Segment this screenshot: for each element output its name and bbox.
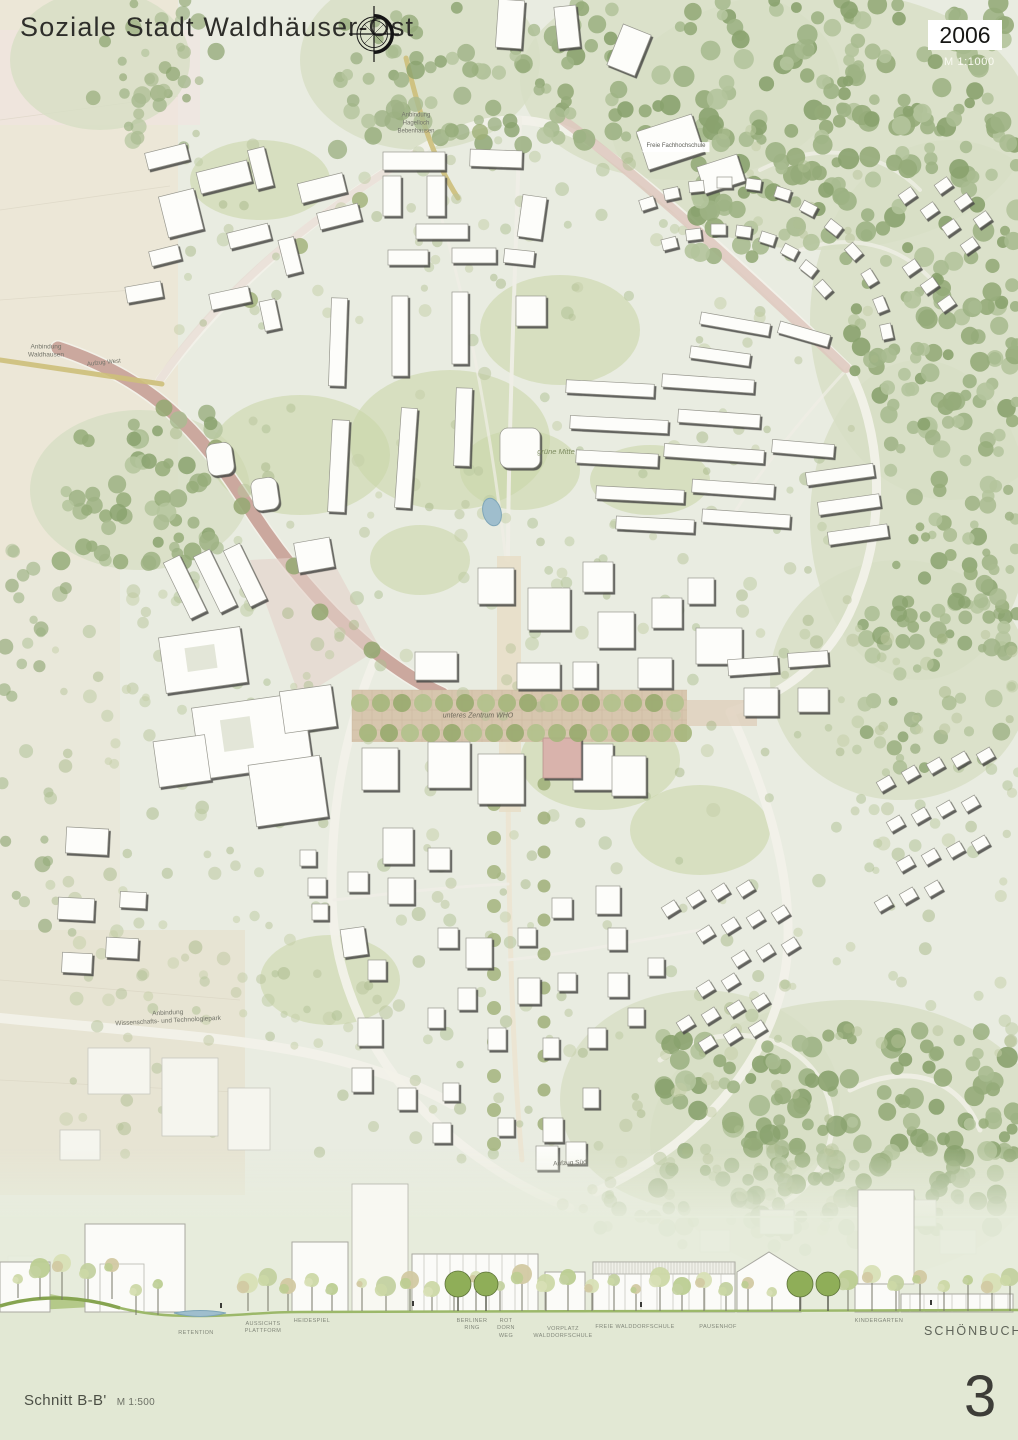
- section-scale-label: M 1:500: [117, 1397, 155, 1408]
- compass-icon: [346, 6, 402, 62]
- section-title-text: Schnitt B-B': [24, 1392, 107, 1409]
- site-plan-page: Anbindung WaldhausenAufzug WestAnbindung…: [0, 0, 1018, 1440]
- section-title: Schnitt B-B'M 1:500: [24, 1392, 155, 1409]
- site-plan-map: [0, 0, 1018, 1440]
- page-number: 3: [964, 1368, 996, 1426]
- plan-scale-label: M 1:1000: [944, 56, 995, 68]
- region-label: SCHÖNBUCH: [924, 1324, 1018, 1338]
- year-badge: 2006: [928, 20, 1002, 50]
